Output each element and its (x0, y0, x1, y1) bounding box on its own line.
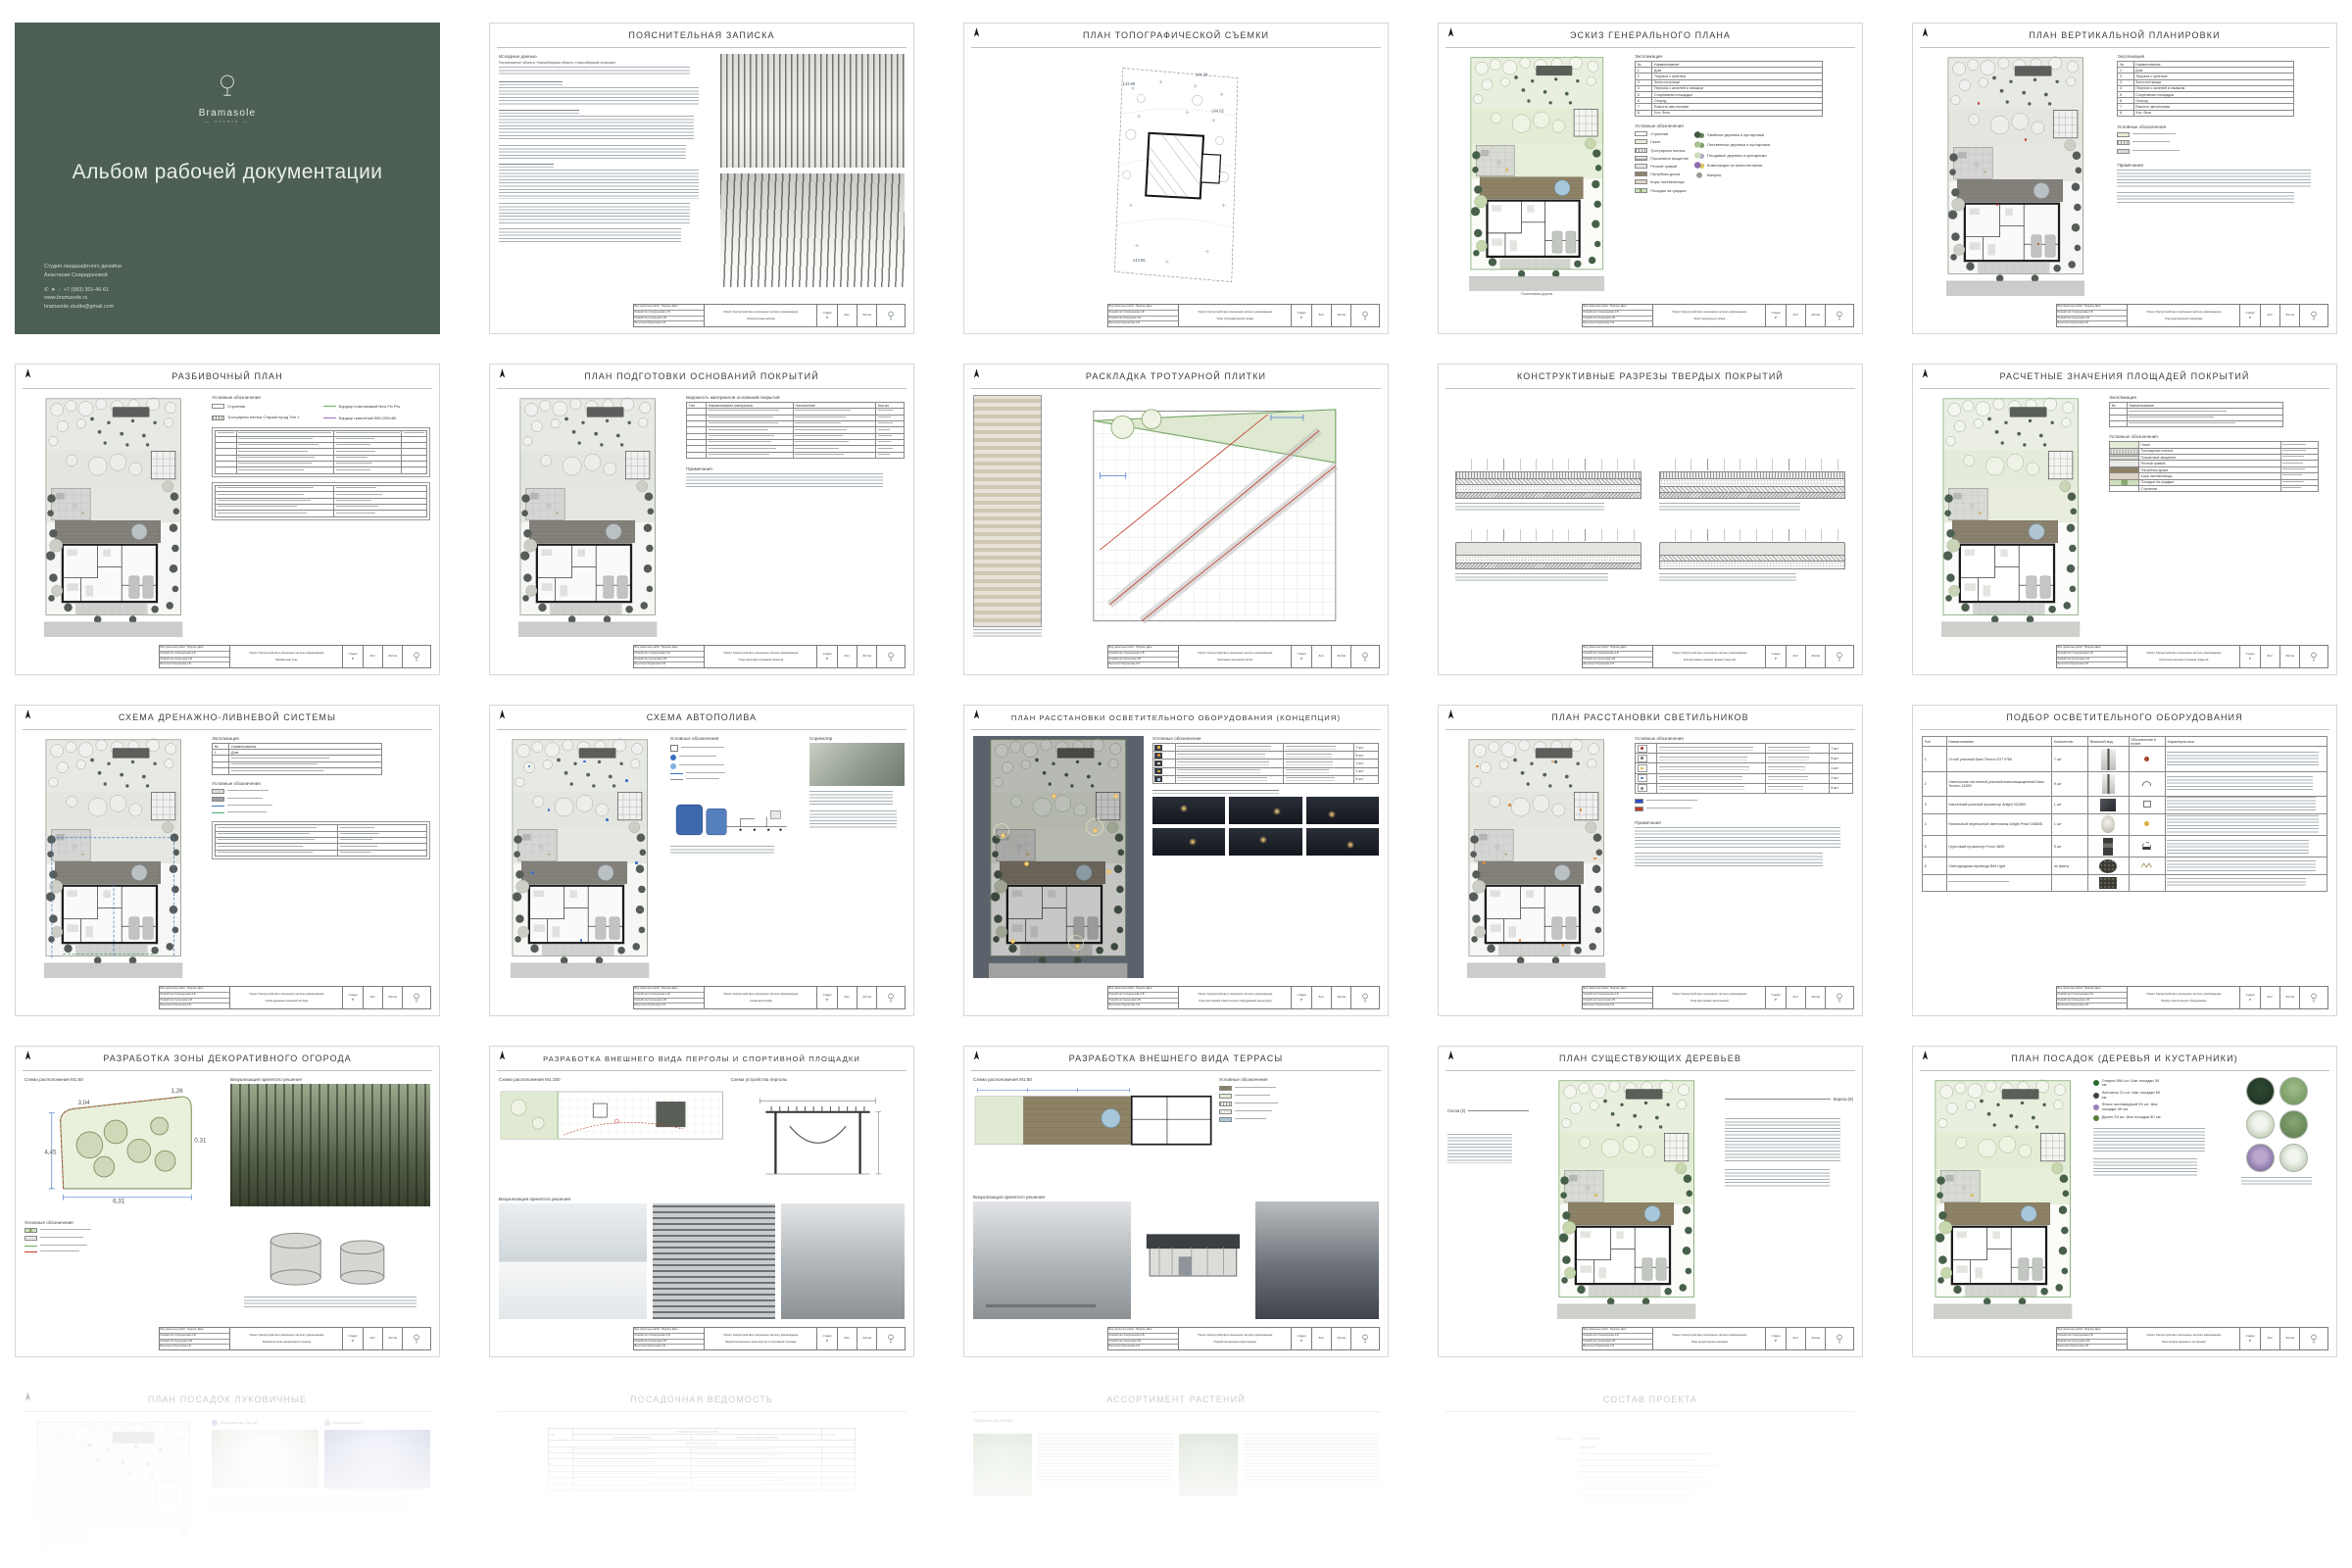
north-arrow-icon (24, 367, 32, 380)
sheet-vertical-grading-plan[interactable]: ПЛАН ВЕРТИКАЛЬНОЙ ПЛАНИРОВКИ Экспликация… (1912, 23, 2337, 334)
title-block: Вид проектных работ: Подпись ДатаРазрабо… (1582, 304, 1854, 327)
street-render (973, 1201, 1131, 1319)
sheet-title: РАЗБИВОЧНЫЙ ПЛАН (171, 371, 283, 381)
bulb-photo (324, 1430, 430, 1489)
visualization-label: Визуализация принятого решения (230, 1077, 430, 1082)
north-arrow-icon (498, 709, 507, 721)
winter-forest-photo-1 (720, 54, 905, 168)
sheet-title: ПЛАН ТОПОГРАФИЧЕСКОЙ СЪЕМКИ (1083, 30, 1269, 40)
studio-phone: +7 (983) 301-46-61 (64, 287, 109, 293)
sheet-kitchen-garden-design[interactable]: РАЗРАБОТКА ЗОНЫ ДЕКОРАТИВНОГО ОГОРОДА Сх… (15, 1046, 440, 1357)
site-plan-drawing (1946, 54, 2084, 296)
plant-photo (2246, 1110, 2275, 1139)
winter-garden-photo (499, 1203, 647, 1319)
bramasole-logo-icon (887, 311, 895, 320)
title-block: Вид проектных работ: Подпись ДатаРазрабо… (633, 304, 906, 327)
lighting-example-photo (1152, 828, 1225, 856)
title-block: Вид проектных работ: Подпись ДатаРазрабо… (159, 645, 431, 668)
sheet-topographic-survey[interactable]: ПЛАН ТОПОГРАФИЧЕСКОЙ СЪЕМКИ Вид проектны… (963, 23, 1389, 334)
planting-schedule-table: №Наименование растенийКол-во Русское наи… (548, 1428, 857, 1491)
materials-table-heading: Ведомость материалов оснований покрытий (686, 395, 905, 400)
granite-border-line (323, 417, 336, 418)
bramasole-logo-icon (1361, 311, 1369, 320)
plant-photo-circles (2226, 1077, 2327, 1319)
sheet-drainage-system[interactable]: СХЕМА ДРЕНАЖНО-ЛИВНЕВОЙ СИСТЕМЫ Эксплика… (15, 705, 440, 1016)
lighting-example-photo (1229, 797, 1301, 824)
north-arrow-icon (24, 1391, 32, 1403)
sheet-base-preparation-plan[interactable]: ПЛАН ПОДГОТОВКИ ОСНОВАНИЙ ПОКРЫТИЙ Ведом… (489, 364, 914, 675)
north-arrow-icon (1446, 26, 1455, 39)
sheet-title: ПОСАДОЧНАЯ ВЕДОМОСТЬ (630, 1395, 773, 1404)
sheet-surface-areas[interactable]: РАСЧЕТНЫЕ ЗНАЧЕНИЯ ПЛОЩАДЕЙ ПОКРЫТИЙ Экс… (1912, 364, 2337, 675)
north-arrow-icon (1921, 1050, 1930, 1062)
swatch-beds (1635, 188, 1647, 193)
title-block: Вид проектных работ: Подпись ДатаРазрабо… (1582, 986, 1854, 1009)
topographic-plan-drawing (1101, 54, 1251, 296)
legend-heading: Условные обозначения (2117, 124, 2327, 129)
bramasole-logo-icon (2310, 652, 2318, 661)
site-plan-drawing (1934, 1077, 2072, 1319)
plant-photo (2279, 1077, 2308, 1105)
sheet-pergola-sport-area-design[interactable]: РАЗРАБОТКА ВНЕШНЕГО ВИДА ПЕРГОЛЫ И СПОРТ… (489, 1046, 914, 1357)
bramasole-logo-icon (413, 993, 420, 1003)
title-block: Вид проектных работ: Подпись ДатаРазрабо… (1107, 1327, 1380, 1350)
drainage-table (212, 821, 430, 859)
sheet-title: ПЛАН РАССТАНОВКИ ОСВЕТИТЕЛЬНОГО ОБОРУДОВ… (1011, 713, 1341, 722)
birch-label: Береза (6) (1834, 1097, 1853, 1102)
north-arrow-icon (972, 367, 981, 380)
sheet-title: ПЛАН РАССТАНОВКИ СВЕТИЛЬНИКОВ (1551, 712, 1749, 722)
sheet-terrace-design[interactable]: РАЗРАБОТКА ВНЕШНЕГО ВИДА ТЕРРАСЫ Схема р… (963, 1046, 1389, 1357)
plant-legend: Хвойные деревья и кустарники Лиственные … (1694, 130, 1770, 195)
sheet-master-plan-sketch[interactable]: ЭСКИЗ ГЕНЕРАЛЬНОГО ПЛАНА Поселковая доро… (1438, 23, 1863, 334)
plant-photo (2279, 1110, 2308, 1139)
drainage-pipes-overlay (24, 736, 203, 978)
north-arrow-icon (1921, 26, 1930, 39)
site-plan-drawing (1941, 395, 2080, 637)
sheet-title: СОСТАВ ПРОЕКТА (1603, 1395, 1697, 1404)
site-plan-drawing (1557, 1077, 1695, 1319)
swatch-paving (1635, 148, 1647, 153)
plant-photo (2279, 1144, 2308, 1172)
pergola-location-scheme (499, 1084, 725, 1147)
studio-brand-sub: — studio — (199, 120, 257, 123)
irrigation-tanks-drawing (670, 797, 791, 843)
bramasole-logo-icon (1836, 311, 1843, 320)
explication-heading: Экспликация (1635, 54, 1853, 59)
sheet-title: РАЗРАБОТКА ВНЕШНЕГО ВИДА ТЕРРАСЫ (1069, 1053, 1284, 1063)
north-arrow-icon (24, 1050, 32, 1062)
bramasole-logo-icon (2310, 311, 2318, 320)
legend-heading: Условные обозначения (1635, 736, 1853, 741)
north-arrow-icon (1446, 709, 1455, 721)
title-block: Вид проектных работ: Подпись ДатаРазрабо… (1107, 304, 1380, 327)
fruit-tree-icon (1694, 152, 1704, 159)
lighting-example-photo (1306, 797, 1379, 824)
explication-table: №Наименование 1Дом (212, 743, 382, 775)
bramasole-logo-icon (1361, 1334, 1369, 1344)
garden-beds-scheme (24, 1084, 224, 1206)
sheet-plant-assortment[interactable]: АССОРТИМЕНТ РАСТЕНИЙ Хвойные растения (963, 1387, 1389, 1568)
north-arrow-icon (498, 367, 507, 380)
bramasole-logo-icon (1361, 652, 1369, 661)
north-arrow-icon (1921, 367, 1930, 380)
studio-brand: Bramasole (199, 108, 257, 119)
sheet-title: СХЕМА АВТОПОЛИВА (647, 712, 758, 722)
title-block: Вид проектных работ: Подпись ДатаРазрабо… (2056, 986, 2328, 1009)
lighting-legend-table: 7 шт 9 шт 1 шт 1 шт 9 шт (1152, 743, 1379, 784)
sheet-title: ПЛАН ВЕРТИКАЛЬНОЙ ПЛАНИРОВКИ (2029, 30, 2220, 40)
sheet-hard-surface-sections[interactable]: КОНСТРУКТИВНЫЕ РАЗРЕЗЫ ТВЕРДЫХ ПОКРЫТИЙ … (1438, 364, 1863, 675)
sheet-title: ПЛАН СУЩЕСТВУЮЩИХ ДЕРЕВЬЕВ (1559, 1053, 1741, 1063)
swatch-lawn (1635, 139, 1647, 144)
sheet-title: ПЛАН ПОСАДОК ЛУКОВИЧНЫЕ (148, 1395, 307, 1404)
road-label: Поселковая дорога (1521, 292, 1552, 296)
section-detail (1455, 459, 1641, 513)
sheet-planting-plan-trees-shrubs[interactable]: ПЛАН ПОСАДОК (ДЕРЕВЬЯ И КУСТАРНИКИ) Спир… (1912, 1046, 2337, 1357)
sheet-title: ПОДБОР ОСВЕТИТЕЛЬНОГО ОБОРУДОВАНИЯ (2006, 712, 2242, 722)
project-contents-list: № листаНазвание Обложка (1557, 1436, 1743, 1568)
perennials-icon (1694, 162, 1704, 169)
paving-wall-detail (973, 395, 1042, 637)
sheet-title: АССОРТИМЕНТ РАСТЕНИЙ (1106, 1395, 1246, 1404)
layout-scheme-label: Схема расположения М1:50 (973, 1077, 1213, 1082)
section-detail (1455, 529, 1641, 583)
swatch-bark (1635, 179, 1647, 184)
explication-heading: Экспликация (2109, 395, 2327, 400)
luminaire-legend-table: 7 шт 9 шт 1 шт 1 шт 9 шт (1635, 743, 1853, 794)
garden-visualization-photo (230, 1084, 430, 1206)
sheet-planting-schedule[interactable]: ПОСАДОЧНАЯ ВЕДОМОСТЬ №Наименование расте… (489, 1387, 914, 1568)
materials-table: ТипНаименование материалаНазначениеКол-в… (686, 402, 905, 459)
sheet-title: РАЗРАБОТКА ВНЕШНЕГО ВИДА ПЕРГОЛЫ И СПОРТ… (543, 1054, 860, 1063)
telegram-icon: ➤ (51, 287, 56, 293)
title-block: Вид проектных работ: Подпись ДатаРазрабо… (159, 986, 431, 1009)
explication-table: №Наименование 1Дом 2Терраса с купелью 3З… (1635, 61, 1823, 117)
swatch-gravel (1635, 164, 1647, 169)
note-location: Расположение объекта: Новосибирская обла… (499, 61, 711, 65)
sheet-title: РАСЧЕТНЫЕ ЗНАЧЕНИЯ ПЛОЩАДЕЙ ПОКРЫТИЙ (2000, 371, 2250, 381)
setting-out-table-2 (212, 482, 430, 520)
site-plan-drawing (35, 1418, 192, 1568)
legend-heading: Условные обозначения (24, 1220, 224, 1225)
phone-icon: ✆ (44, 287, 49, 293)
bed-construction-drawing (261, 1224, 401, 1294)
winter-forest-photo-2 (720, 173, 905, 287)
lighting-equipment-table: Тип Наименование Количество Внешний вид … (1922, 736, 2327, 892)
pergola-structure-drawing (745, 1084, 891, 1188)
notes-heading: Примечания (686, 466, 905, 471)
title-block: Вид проектных работ: Подпись ДатаРазрабо… (1582, 645, 1854, 668)
album-title: Альбом рабочей документации (73, 161, 383, 184)
legend-heading: Условные обозначения (1152, 736, 1379, 741)
title-block: Вид проектных работ: Подпись ДатаРазрабо… (633, 645, 906, 668)
visualization-label: Визуализация принятого решения (499, 1197, 905, 1201)
title-block: Вид проектных работ: Подпись ДатаРазрабо… (1107, 986, 1380, 1009)
swatch-stepping (1635, 156, 1647, 161)
north-arrow-icon (1446, 1050, 1455, 1062)
note-heading: Исходные данные (499, 54, 711, 59)
sheet-title: РАЗРАБОТКА ЗОНЫ ДЕКОРАТИВНОГО ОГОРОДА (103, 1053, 352, 1063)
bramasole-logo-icon (887, 1334, 895, 1344)
pine-label: Сосна (2) (1447, 1108, 1465, 1113)
pergola-render (653, 1203, 776, 1319)
title-block: Вид проектных работ: Подпись ДатаРазрабо… (1582, 1327, 1854, 1350)
sheet-title: ЭСКИЗ ГЕНЕРАЛЬНОГО ПЛАНА (1570, 30, 1731, 40)
sheet-paving-layout[interactable]: РАСКЛАДКА ТРОТУАРНОЙ ПЛИТКИ Вид проектны… (963, 364, 1389, 675)
notes-heading: Примечания (1635, 820, 1853, 825)
conifers-section-label: Хвойные растения (973, 1418, 1379, 1423)
visualization-label: Визуализация принятого решения (973, 1195, 1379, 1200)
lighting-example-photo (1306, 828, 1379, 856)
north-arrow-icon (972, 709, 981, 721)
swatch-buildings (1635, 131, 1647, 136)
plant-photo (1179, 1434, 1238, 1496)
house-axonometric-drawing (1137, 1201, 1249, 1296)
sheet-existing-trees-plan[interactable]: ПЛАН СУЩЕСТВУЮЩИХ ДЕРЕВЬЕВ Сосна (2) Бер… (1438, 1046, 1863, 1357)
swatch-deck (1635, 171, 1647, 176)
bramasole-logo-icon (2310, 993, 2318, 1003)
north-arrow-icon (972, 26, 981, 39)
north-arrow-icon (972, 1050, 981, 1062)
sheet-irrigation-scheme[interactable]: СХЕМА АВТОПОЛИВА Условные обозначения Сп… (489, 705, 914, 1016)
pergola-scheme-label: Схема устройства перголы (731, 1077, 905, 1082)
lighting-example-photo (1229, 828, 1301, 856)
legend-heading: Условные обозначения (212, 781, 430, 786)
conifer-icon (1694, 131, 1704, 138)
bulb-photo (212, 1430, 318, 1489)
legend-heading: Условные обозначения (1219, 1077, 1379, 1082)
documentation-board: Bramasole — studio — Альбом рабочей доку… (0, 0, 2352, 1568)
site-plan-drawing (1467, 736, 1605, 978)
bramasole-logo-icon (887, 652, 895, 661)
bramasole-logo-icon (413, 1334, 420, 1344)
sheet-lighting-concept-plan[interactable]: ПЛАН РАССТАНОВКИ ОСВЕТИТЕЛЬНОГО ОБОРУДОВ… (963, 705, 1389, 1016)
plant-photo (973, 1434, 1032, 1496)
sheet-title: РАСКЛАДКА ТРОТУАРНОЙ ПЛИТКИ (1086, 371, 1266, 381)
title-block: Вид проектных работ: Подпись ДатаРазрабо… (633, 1327, 906, 1350)
layout-scheme-label: Схема расположения М1:50 (24, 1077, 224, 1082)
sheet-lighting-equipment-selection[interactable]: ПОДБОР ОСВЕТИТЕЛЬНОГО ОБОРУДОВАНИЯ Тип Н… (1912, 705, 2337, 1016)
plant-photo (2246, 1077, 2275, 1105)
studio-email: bramasole.studio@gmail.com (44, 303, 122, 311)
plant-photo (2246, 1144, 2275, 1172)
bramasole-logo-icon (1836, 1334, 1843, 1344)
explication-table: №Наименование (2109, 402, 2283, 427)
north-arrow-icon (24, 709, 32, 721)
bramasole-logo-icon (887, 993, 895, 1003)
surface-legend: Строения Газон Тротуарная плитка Пошагов… (1635, 130, 1689, 195)
bramasole-logo-icon (2310, 1334, 2318, 1344)
notes-heading: Примечания (2117, 163, 2327, 168)
sheet-title: КОНСТРУКТИВНЫЕ РАЗРЕЗЫ ТВЕРДЫХ ПОКРЫТИЙ (1517, 371, 1784, 381)
boulder-icon (1694, 171, 1704, 178)
bramasole-logo-icon (1836, 993, 1843, 1003)
whatsapp-icon: ◌ (58, 287, 61, 293)
sprinkler-heading: Спринклер (809, 736, 905, 741)
sheet-title: ПЛАН ПОСАДОК (ДЕРЕВЬЯ И КУСТАРНИКИ) (2011, 1053, 2238, 1063)
setting-out-legend: Строения Бордюр пластиковый New Fix Pro … (212, 402, 430, 421)
site-plan-drawing (1469, 54, 1605, 291)
title-block: Вид проектных работ: Подпись ДатаРазрабо… (159, 1327, 431, 1350)
sheet-project-contents[interactable]: СОСТАВ ПРОЕКТА № листаНазвание Обложка (1438, 1387, 1863, 1568)
bramasole-logo-icon (1361, 993, 1369, 1003)
sheet-bulb-planting-plan[interactable]: ПЛАН ПОСАДОК ЛУКОВИЧНЫЕ Белоцветник 110 … (15, 1387, 440, 1568)
bramasole-logo-icon (217, 73, 238, 101)
bramasole-logo-icon (1836, 652, 1843, 661)
deciduous-icon (1694, 141, 1704, 148)
terrace-location-scheme (973, 1084, 1213, 1157)
legend-heading: Условные обозначения (1635, 123, 1853, 128)
sport-area-render (781, 1203, 905, 1319)
studio-description-line1: Студия ландшафтного дизайна (44, 263, 122, 270)
legend-heading: Условные обозначения (212, 395, 430, 400)
sheet-luminaires-plan[interactable]: ПЛАН РАССТАНОВКИ СВЕТИЛЬНИКОВ Условные о… (1438, 705, 1863, 1016)
bramasole-logo-icon (413, 652, 420, 661)
paving-plan-drawing (1051, 395, 1379, 637)
section-detail (1659, 459, 1845, 513)
title-block: Вид проектных работ: Подпись ДатаРазрабо… (1107, 645, 1380, 668)
title-block: Вид проектных работ: Подпись ДатаРазрабо… (633, 986, 906, 1009)
sheet-title: ПЛАН ПОДГОТОВКИ ОСНОВАНИЙ ПОКРЫТИЙ (584, 371, 819, 381)
site-plan-drawing (44, 395, 182, 637)
title-block: Вид проектных работ: Подпись ДатаРазрабо… (2056, 304, 2328, 327)
title-block: Вид проектных работ: Подпись ДатаРазрабо… (2056, 1327, 2328, 1350)
explication-heading: Экспликация (2117, 54, 2327, 59)
title-block: Вид проектных работ: Подпись ДатаРазрабо… (2056, 645, 2328, 668)
sheet-cover[interactable]: Bramasole — studio — Альбом рабочей доку… (15, 23, 440, 334)
explication-table: №Наименование 1Дом 2Терраса с купелью 3З… (2117, 61, 2293, 117)
site-plan-drawing (518, 395, 657, 637)
studio-description-line2: Анастасии Спиридоновой (44, 271, 122, 279)
north-arrow-icon (498, 1050, 507, 1062)
sheet-setting-out-plan[interactable]: РАЗБИВОЧНЫЙ ПЛАН Условные обозначения Ст… (15, 364, 440, 675)
night-plan (973, 736, 1144, 978)
areas-table-heading: Условные обозначения (2109, 434, 2327, 439)
house-render (1255, 1201, 1379, 1319)
explication-heading: Экспликация (212, 736, 430, 741)
plastic-border-line (323, 406, 336, 407)
sheet-title: ПОЯСНИТЕЛЬНАЯ ЗАПИСКА (628, 30, 774, 40)
legend-heading: Условные обозначения (670, 736, 801, 741)
sheet-title: СХЕМА ДРЕНАЖНО-ЛИВНЕВОЙ СИСТЕМЫ (119, 712, 336, 722)
sprinkler-photo (809, 743, 905, 786)
planting-legend: Спирея 554 шт. Шаг посадки 30 см Лапчатк… (2093, 1077, 2218, 1319)
areas-table: Газон Тротуарная плитка Пошаговое мощени… (2109, 441, 2319, 492)
setting-out-table (212, 427, 430, 476)
layout-scheme-label: Схема расположения М1:150 (499, 1077, 725, 1082)
studio-website: www.bramasole.ru (44, 294, 122, 302)
section-detail (1659, 529, 1845, 583)
sheet-explanatory-note[interactable]: ПОЯСНИТЕЛЬНАЯ ЗАПИСКА Исходные данные Ра… (489, 23, 914, 334)
lighting-example-photo (1152, 797, 1225, 824)
